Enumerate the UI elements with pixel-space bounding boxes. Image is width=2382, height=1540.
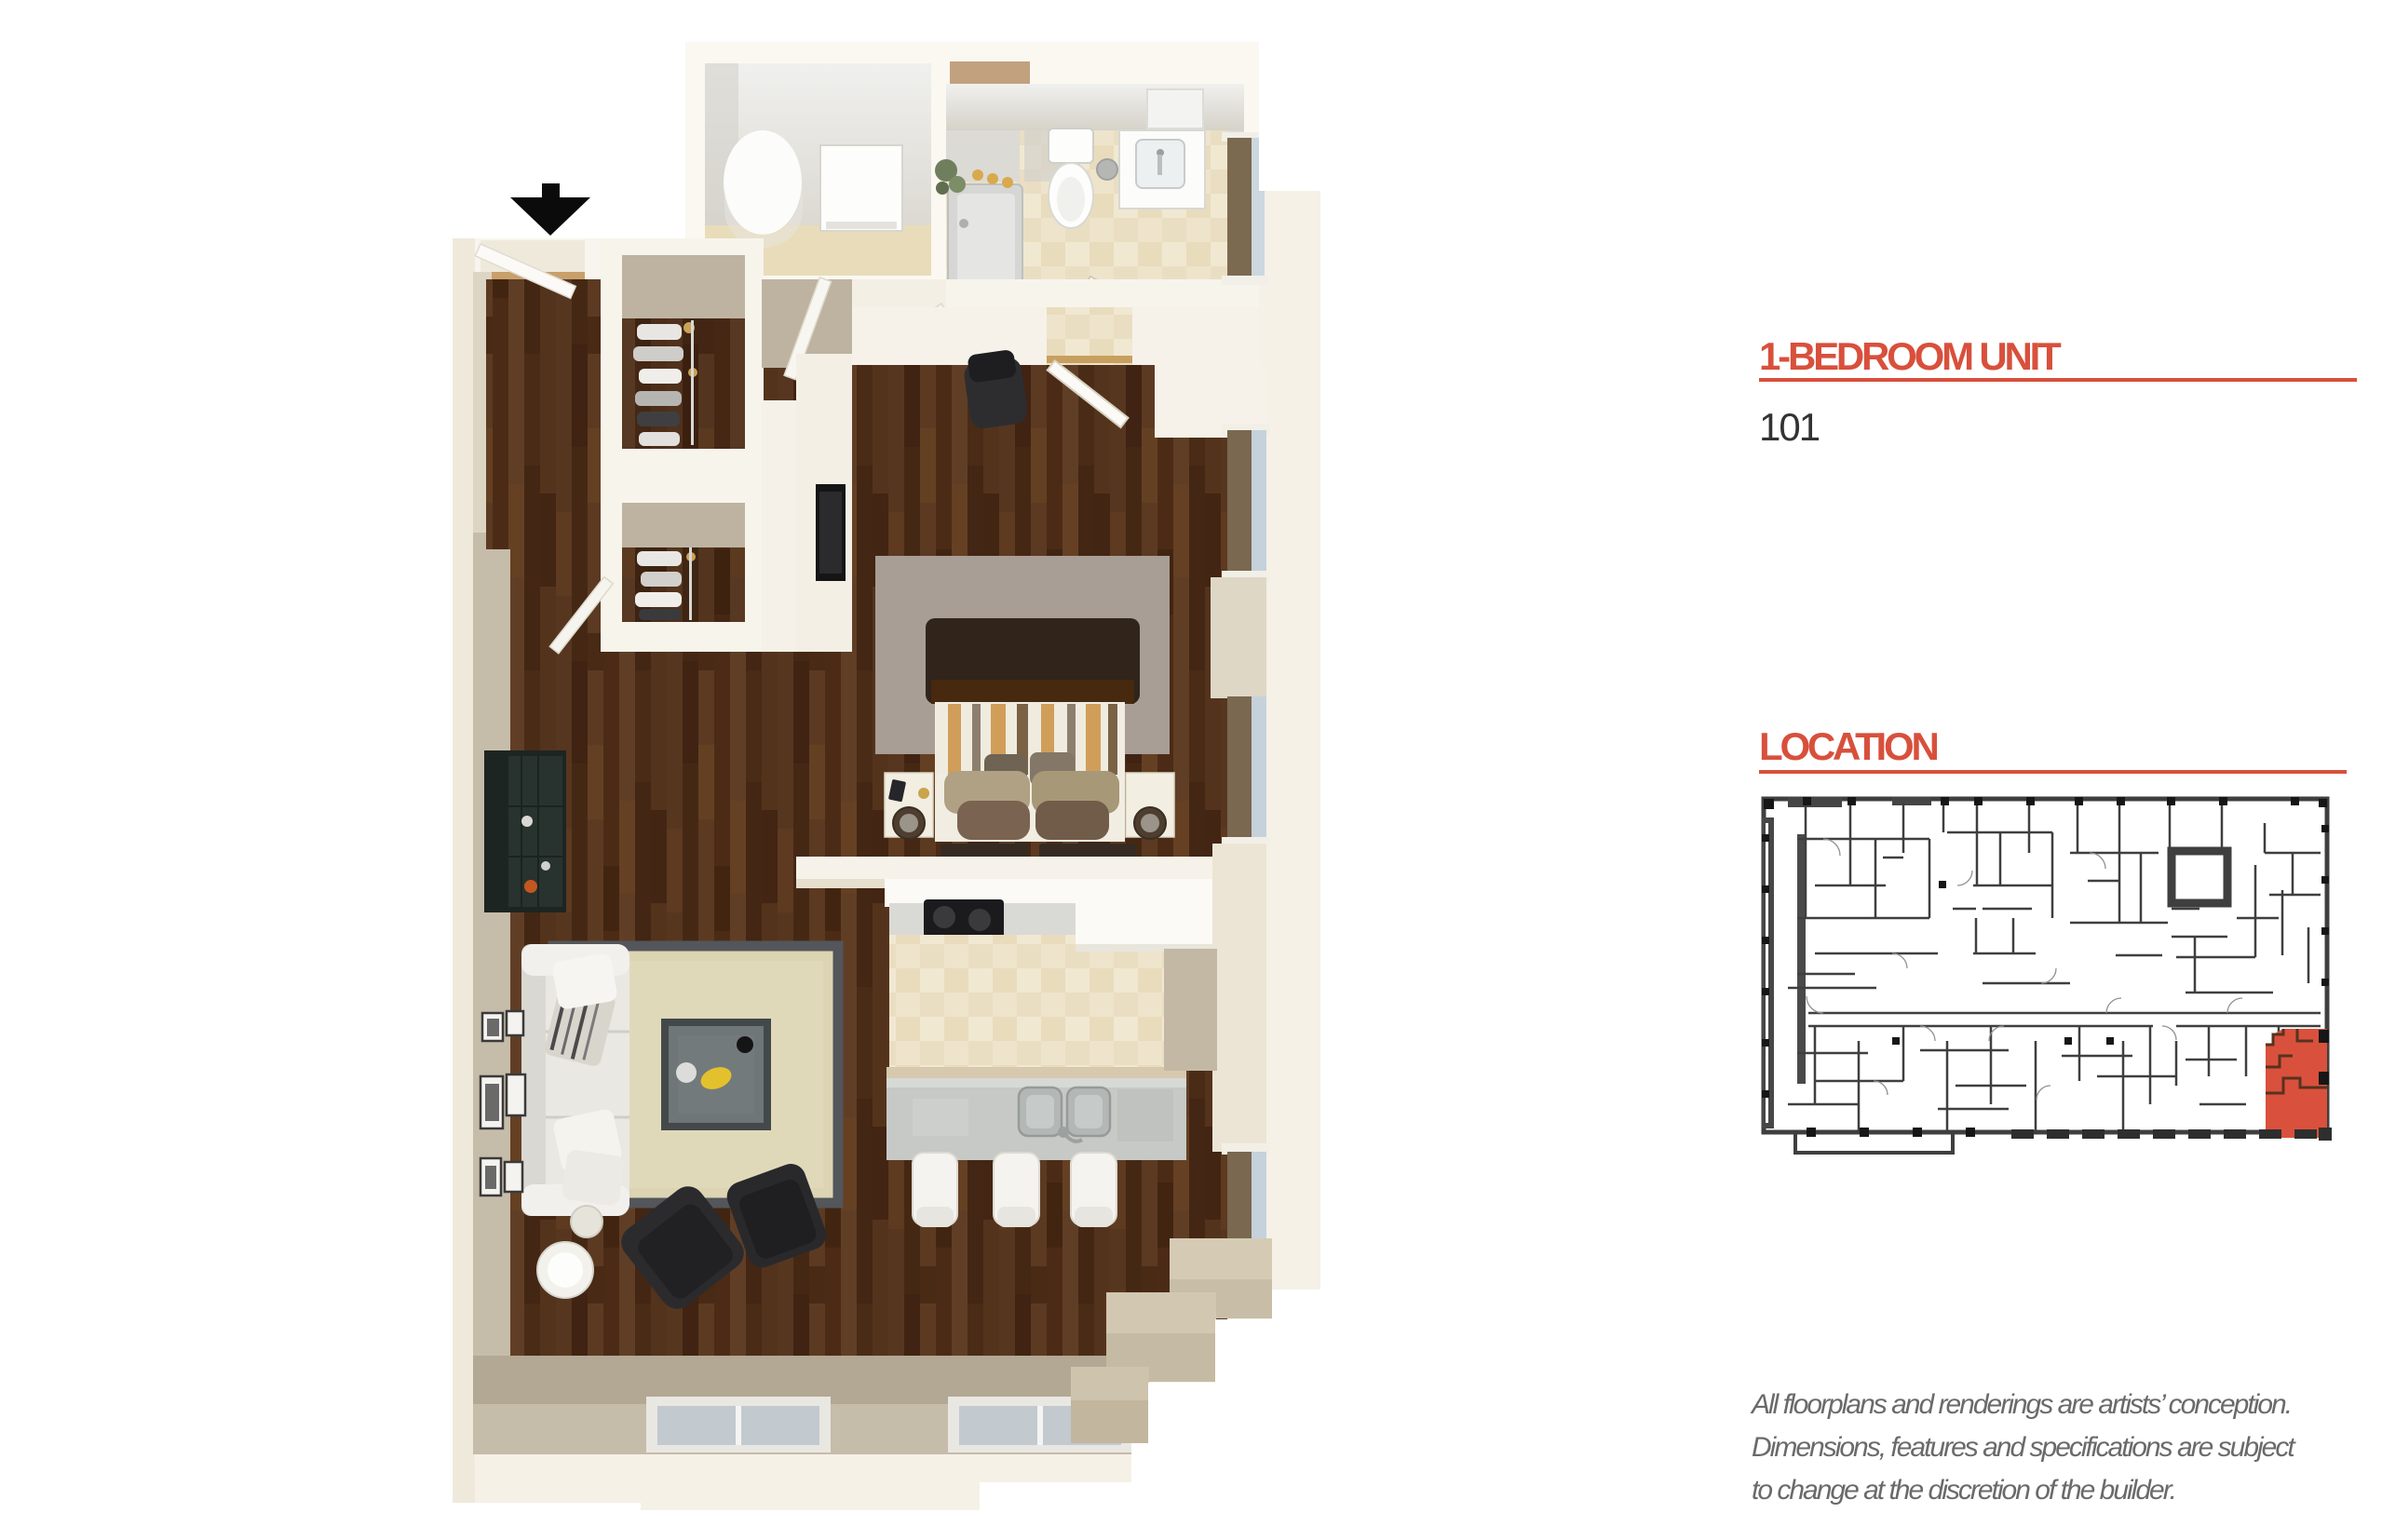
svg-text:to change at the discretion of: to change at the discretion of the build… <box>1752 1475 2175 1506</box>
svg-text:1-BEDROOM UNIT: 1-BEDROOM UNIT <box>1759 334 2062 378</box>
svg-text:All floorplans and renderings: All floorplans and renderings are artist… <box>1750 1389 2291 1420</box>
svg-text:LOCATION: LOCATION <box>1759 724 1937 768</box>
svg-text:101: 101 <box>1759 405 1820 449</box>
svg-text:Dimensions, features and speci: Dimensions, features and specifications … <box>1752 1432 2296 1463</box>
